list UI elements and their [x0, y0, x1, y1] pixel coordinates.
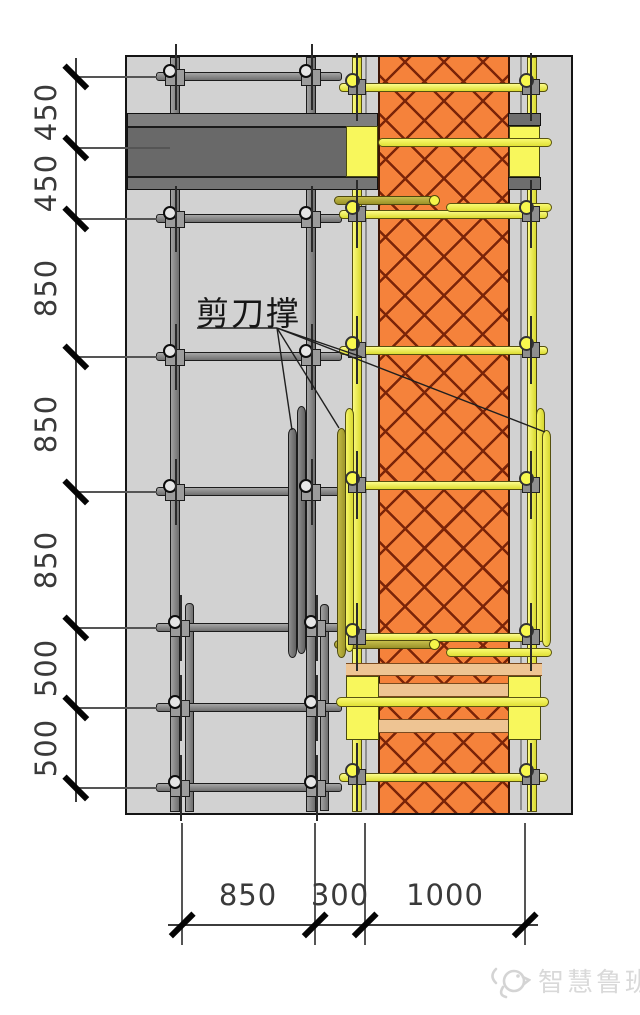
extension-line — [75, 787, 157, 789]
watermark-bird-icon — [487, 963, 531, 999]
dimension-label: 1000 — [395, 878, 495, 912]
timber-board — [379, 719, 509, 733]
timber-board — [346, 663, 542, 676]
tube-end-cap — [429, 639, 440, 650]
coupler-yellow — [348, 477, 366, 493]
coupler — [306, 620, 326, 637]
formwork-clamp-block — [509, 126, 540, 177]
formwork-clamp-block — [508, 676, 541, 740]
extension-line — [75, 707, 157, 709]
coupler-yellow — [522, 79, 540, 95]
dimension-label: 450 — [29, 145, 59, 221]
coupler-yellow — [522, 342, 540, 358]
coupler — [165, 211, 185, 228]
scissor-brace-yellow — [337, 428, 346, 658]
beam-form-flange — [508, 113, 541, 126]
coupler-yellow — [348, 79, 366, 95]
coupler — [170, 620, 190, 637]
coupler-yellow — [522, 206, 540, 222]
dimension-label: 850 — [29, 386, 59, 462]
coupler — [301, 211, 321, 228]
tube-end-cap — [429, 195, 440, 206]
coupler — [170, 700, 190, 717]
coupler — [170, 780, 190, 797]
coupler-yellow — [348, 629, 366, 645]
formwork-clamp-block — [346, 676, 379, 740]
dimension-label: 850 — [198, 878, 298, 912]
dimension-line-vertical — [75, 58, 77, 802]
construction-detail-drawing: 450 450 850 850 850 500 500 850 300 1000… — [0, 0, 640, 1015]
coupler — [301, 349, 321, 366]
coupler — [301, 484, 321, 501]
coupler — [306, 780, 326, 797]
extension-line — [75, 491, 157, 493]
coupler — [165, 69, 185, 86]
coupler-yellow — [348, 769, 366, 785]
formwork-clamp-block — [346, 126, 378, 177]
timber-board — [379, 683, 509, 697]
coupler-yellow — [522, 477, 540, 493]
extension-line — [75, 356, 157, 358]
coupler — [301, 69, 321, 86]
ledger-yellow — [339, 481, 548, 490]
extension-line — [75, 76, 157, 78]
beam-form-flange — [508, 177, 541, 190]
extension-line — [75, 147, 170, 149]
form-tie-rod — [378, 138, 552, 147]
dimension-label: 500 — [29, 630, 59, 706]
watermark-text: 智慧鲁班 — [538, 962, 640, 999]
dimension-label: 850 — [29, 522, 59, 598]
dimension-line-horizontal — [168, 924, 538, 926]
coupler-yellow — [522, 629, 540, 645]
scissor-brace-yellow — [542, 430, 551, 647]
coupler — [306, 700, 326, 717]
coupler-yellow — [522, 769, 540, 785]
ledger-yellow — [339, 346, 548, 355]
wall-tie-tube — [446, 648, 552, 657]
scissor-brace-gray — [288, 428, 297, 658]
coupler-yellow — [348, 342, 366, 358]
coupler-yellow — [348, 206, 366, 222]
concrete-beam — [127, 113, 378, 190]
coupler — [165, 484, 185, 501]
coupler — [165, 349, 185, 366]
scissor-brace-label: 剪刀撑 — [196, 287, 301, 335]
scissor-brace-yellow — [345, 408, 354, 652]
ledger-yellow — [339, 773, 548, 782]
dimension-label: 300 — [305, 878, 375, 912]
dimension-label: 450 — [29, 74, 59, 150]
dimension-label: 500 — [29, 710, 59, 786]
dimension-label: 850 — [29, 250, 59, 326]
ledger-yellow — [339, 83, 548, 92]
extension-line — [75, 218, 157, 220]
watermark: 智慧鲁班 — [487, 962, 640, 999]
form-tie-rod — [336, 697, 549, 707]
extension-line — [75, 627, 157, 629]
